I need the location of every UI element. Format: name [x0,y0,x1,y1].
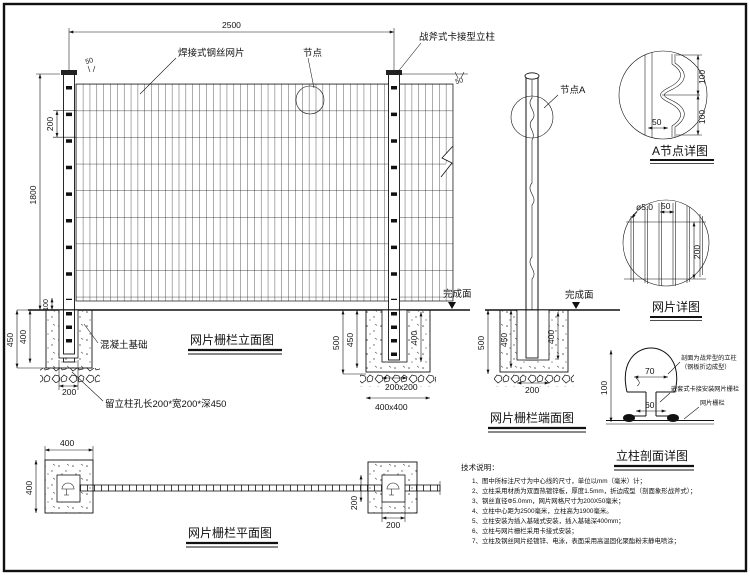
drawing-sheet: 2500 1800 200 50 50 焊接式钢丝网片 节点 战斧式卡接型立柱 … [0,0,750,576]
dim-100: 100 [599,381,609,395]
label-profile-line1: 剖面为战斧型的立柱 [681,354,737,362]
dim-200x200: 200x200 [385,382,418,392]
dim-wire-diameter: ø5.0 [636,202,653,212]
plan-title: 网片栅栏平面图 [188,525,272,540]
left-post-cap [61,70,77,75]
dim-400x400: 400x400 [375,402,408,412]
dim-500: 500 [331,336,341,350]
mesh-detail-bars [631,202,703,286]
tomahawk-curl [636,378,639,386]
end-view-title: 网片栅栏端面图 [490,410,574,425]
label-mesh-fence: 网片栅栏 [700,399,725,407]
finish-surface-marker [448,302,456,309]
dim-50-right: 50 [455,77,464,86]
end-view: 节点A 完成面 500 450 400 200 网片栅栏端面图 [476,73,620,432]
dim-60: 60 [645,400,655,410]
finish-surface-marker [572,302,580,309]
note-item: 5、立柱安装为插入基础式安装，插入基础深400mm； [472,516,625,525]
label-finish-surface: 完成面 [565,289,594,301]
dim-70: 70 [645,366,655,376]
mesh-detail-title: 网片详图 [652,299,700,314]
post-section-title: 立柱剖面详图 [616,448,688,463]
plan-left-hole [57,475,80,502]
detail-a-title: A节点详图 [652,143,708,158]
dim-2500: 2500 [222,20,241,30]
dim-50: 50 [661,201,671,211]
notes-heading: 技术说明： [461,462,499,472]
leader-line [308,58,314,88]
note-item: 6、立柱与网片栅栏采用卡接式安装； [472,526,578,535]
left-rubble [40,368,100,383]
note-item: 7、立柱及钢丝网片经镀锌、电泳，表面采用高温固化聚酯粉末静电喷涂； [472,536,680,545]
dim-200-hole: 200 [62,387,76,397]
dim-200-horizontal: 200 [386,520,400,530]
end-post-embedded [526,310,538,358]
note-item: 3、钢丝直径Φ5.0mm，网片网格尺寸为200X50毫米； [472,496,624,505]
technical-notes: 技术说明： 1、图中所标注尺寸为中心线的尺寸，单位以mm（毫米）计； 2、立柱采… [461,462,696,545]
label-node: 节点 [303,48,323,59]
dim-400: 400 [18,330,28,344]
dim-400: 400 [546,330,556,344]
dim-200: 200 [692,245,702,259]
plan-view: 400 400 200 200 网片栅栏平面图 [24,438,440,547]
dim-450: 450 [5,333,15,347]
dim-50: 50 [652,117,662,127]
label-clamp-install: 嵌套式卡接安装网片栅栏 [671,385,739,393]
dim-450: 450 [499,333,509,347]
label-post-hole: 留立柱孔长200*宽200*深450 [105,398,226,410]
elevation-view: 2500 1800 200 50 50 焊接式钢丝网片 节点 战斧式卡接型立柱 … [5,20,496,412]
post-section-detail: 70 60 100 剖面为战斧型的立柱 （钢板折边成型） 嵌套式卡接安装网片栅栏… [599,348,739,470]
label-profile-line2: （钢板折边成型） [681,363,731,371]
dim-100-top: 100 [697,70,707,84]
leader-line [660,393,670,402]
label-node-a: 节点A [560,85,586,96]
leader-line [684,407,699,419]
note-item: 2、立柱采用材质为双面热镀锌板，厚度1.5mm，折边成型（剖面象形战斧式）； [472,486,696,495]
dim-200-pitch: 200 [45,117,55,131]
dim-400-top: 400 [60,438,74,448]
plan-right-hole [382,475,405,502]
label-concrete-foundation: 混凝土基础 [100,339,148,351]
dim-1800: 1800 [28,185,38,204]
clamp-profile [661,54,681,137]
note-item: 4、立柱中心距为2500毫米，立柱高为1900毫米。 [472,506,613,515]
dim-400: 400 [409,331,419,345]
dim-500: 500 [476,336,486,350]
mesh-detail: ø5.0 50 200 网片详图 [623,200,709,321]
dim-450: 450 [345,333,355,347]
drawing-canvas: 2500 1800 200 50 50 焊接式钢丝网片 节点 战斧式卡接型立柱 … [0,0,750,576]
end-post-cap [525,73,539,79]
label-welded-mesh: 焊接式钢丝网片 [178,47,245,59]
dim-400-left: 400 [24,481,34,495]
left-post-embedded [64,310,75,354]
dim-200: 200 [525,385,539,395]
label-finish-surface: 完成面 [443,288,472,300]
elevation-title: 网片栅栏立面图 [190,332,274,347]
note-item: 1、图中所标注尺寸为中心线的尺寸，单位以mm（毫米）计； [472,476,646,485]
dim-100-bottom: 100 [697,110,707,124]
detail-a: 100 100 50 A节点详图 [619,51,714,164]
dim-50-left-arrows [88,66,95,72]
dim-100: 100 [43,299,50,311]
leader-line [397,43,421,73]
dim-200-vertical: 200 [349,496,359,510]
label-post: 战斧式卡接型立柱 [419,31,496,43]
dim-50-left: 50 [85,57,94,66]
leader-line [632,212,637,218]
